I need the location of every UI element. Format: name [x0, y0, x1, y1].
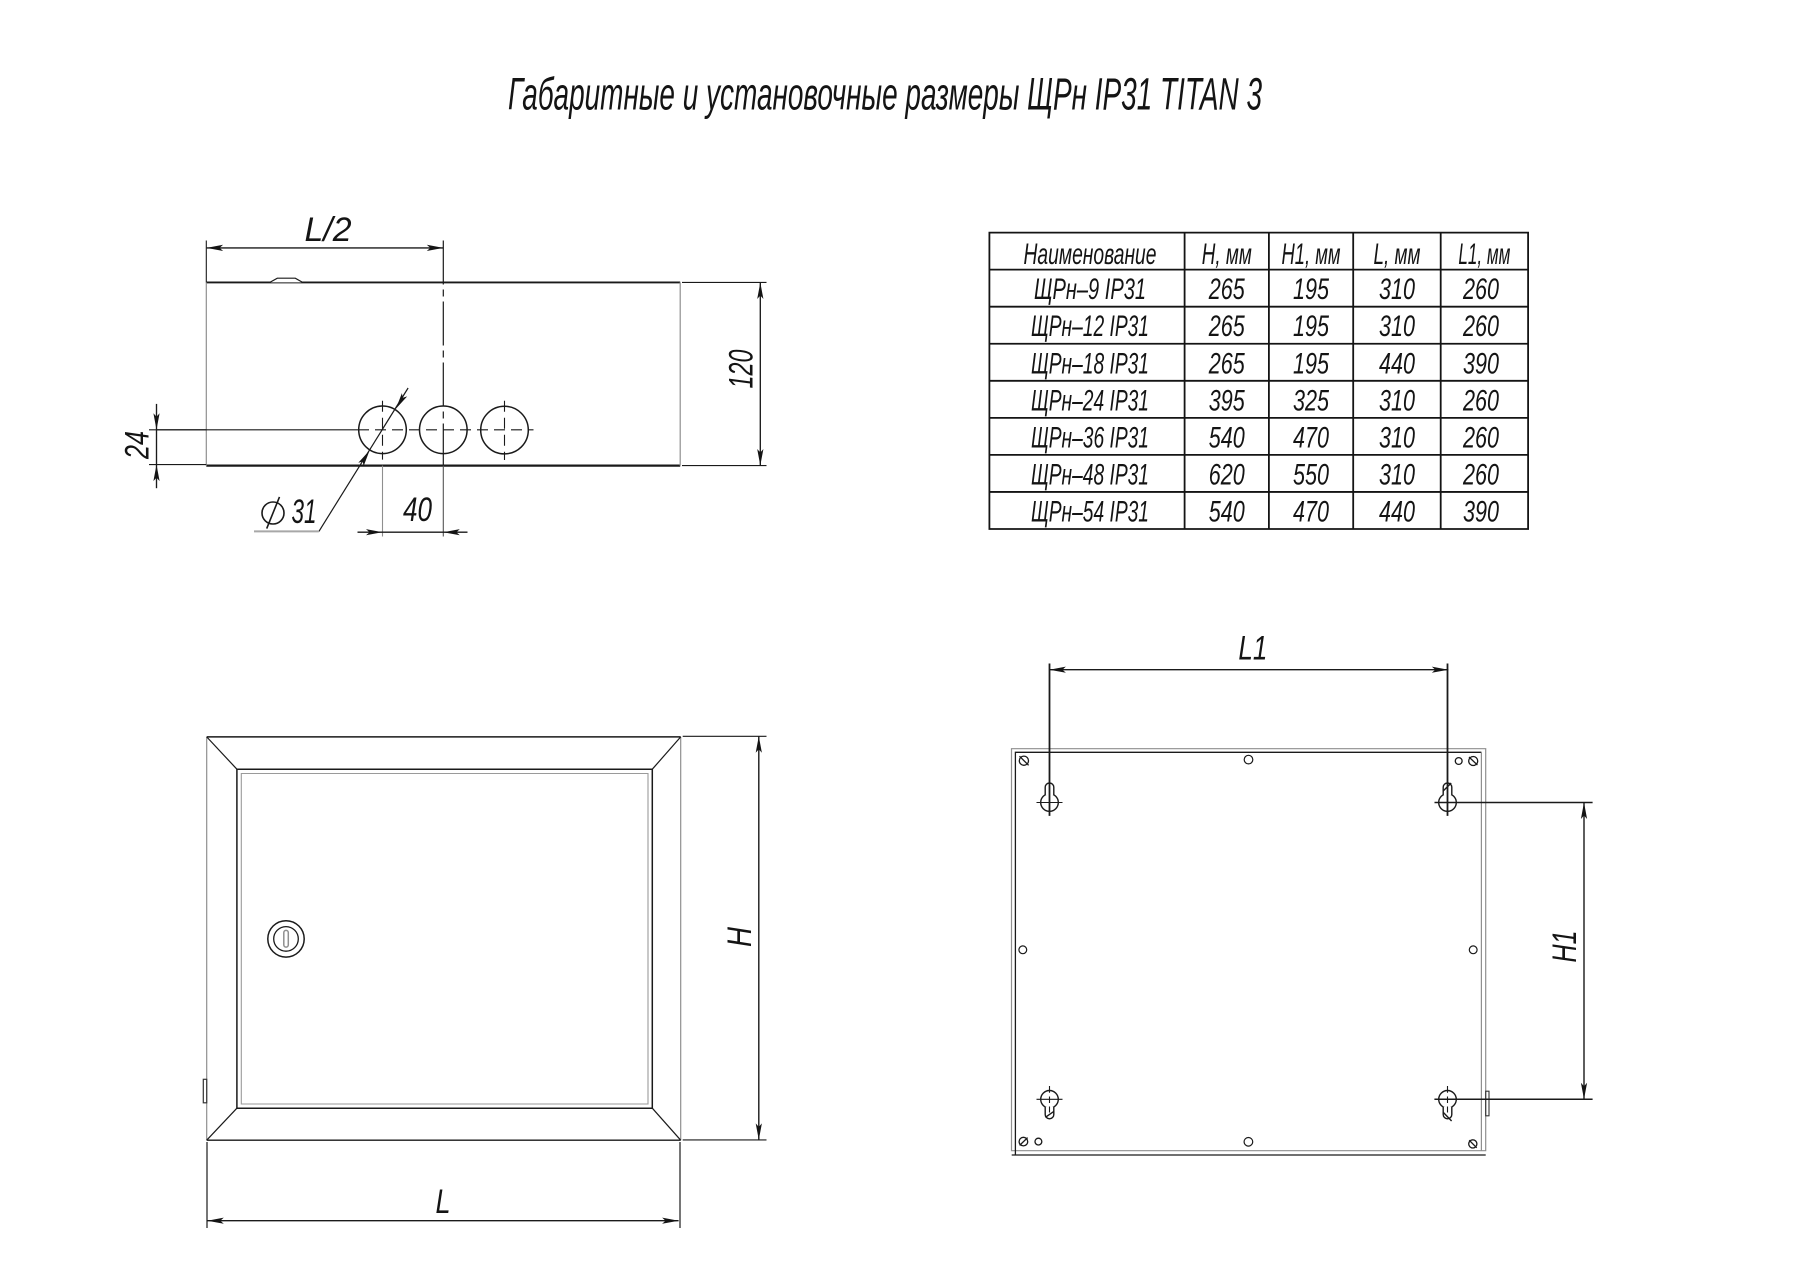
- svg-text:195: 195: [1293, 310, 1329, 343]
- svg-text:H: H: [721, 927, 759, 947]
- svg-text:390: 390: [1463, 495, 1499, 528]
- svg-text:440: 440: [1379, 495, 1415, 528]
- svg-text:ЩРн–24 IP31: ЩРн–24 IP31: [1031, 384, 1149, 417]
- svg-text:265: 265: [1208, 347, 1245, 380]
- svg-text:395: 395: [1209, 384, 1245, 417]
- svg-text:L, мм: L, мм: [1374, 238, 1421, 271]
- svg-text:310: 310: [1379, 310, 1415, 343]
- svg-text:24: 24: [119, 431, 157, 460]
- svg-text:260: 260: [1462, 421, 1499, 454]
- svg-text:325: 325: [1293, 384, 1329, 417]
- svg-text:310: 310: [1379, 458, 1415, 491]
- svg-text:H1, мм: H1, мм: [1282, 238, 1341, 271]
- svg-text:440: 440: [1379, 347, 1415, 380]
- svg-text:H, мм: H, мм: [1202, 238, 1252, 271]
- svg-text:260: 260: [1462, 273, 1499, 306]
- svg-text:540: 540: [1209, 421, 1245, 454]
- svg-text:40: 40: [403, 491, 432, 529]
- svg-text:260: 260: [1462, 384, 1499, 417]
- svg-text:620: 620: [1209, 458, 1245, 491]
- svg-text:550: 550: [1293, 458, 1329, 491]
- svg-text:L: L: [436, 1183, 451, 1221]
- svg-text:ЩРн–54 IP31: ЩРн–54 IP31: [1031, 495, 1149, 528]
- svg-text:ЩРн–48 IP31: ЩРн–48 IP31: [1031, 458, 1149, 491]
- svg-text:310: 310: [1379, 384, 1415, 417]
- svg-text:260: 260: [1462, 310, 1499, 343]
- svg-text:Габаритные и установочные разм: Габаритные и установочные размеры ЩРн IP…: [508, 69, 1262, 120]
- svg-text:390: 390: [1463, 347, 1499, 380]
- svg-text:Наименование: Наименование: [1024, 238, 1157, 271]
- svg-text:L/2: L/2: [305, 211, 352, 249]
- svg-text:ЩРн–36 IP31: ЩРн–36 IP31: [1031, 421, 1149, 454]
- svg-text:265: 265: [1208, 310, 1245, 343]
- svg-text:L1: L1: [1238, 630, 1267, 668]
- svg-text:265: 265: [1208, 273, 1245, 306]
- svg-text:310: 310: [1379, 421, 1415, 454]
- svg-text:195: 195: [1293, 347, 1329, 380]
- svg-text:470: 470: [1293, 421, 1329, 454]
- svg-text:120: 120: [723, 349, 761, 388]
- svg-text:540: 540: [1209, 495, 1245, 528]
- svg-text:470: 470: [1293, 495, 1329, 528]
- svg-text:ЩРн–12 IP31: ЩРн–12 IP31: [1031, 310, 1149, 343]
- svg-text:310: 310: [1379, 273, 1415, 306]
- svg-text:195: 195: [1293, 273, 1329, 306]
- svg-text:ЩРн–18 IP31: ЩРн–18 IP31: [1031, 347, 1149, 380]
- svg-text:31: 31: [292, 493, 317, 531]
- svg-text:260: 260: [1462, 458, 1499, 491]
- svg-text:ЩРн–9 IP31: ЩРн–9 IP31: [1034, 273, 1146, 306]
- svg-text:L1, мм: L1, мм: [1458, 238, 1510, 271]
- svg-text:H1: H1: [1546, 931, 1584, 963]
